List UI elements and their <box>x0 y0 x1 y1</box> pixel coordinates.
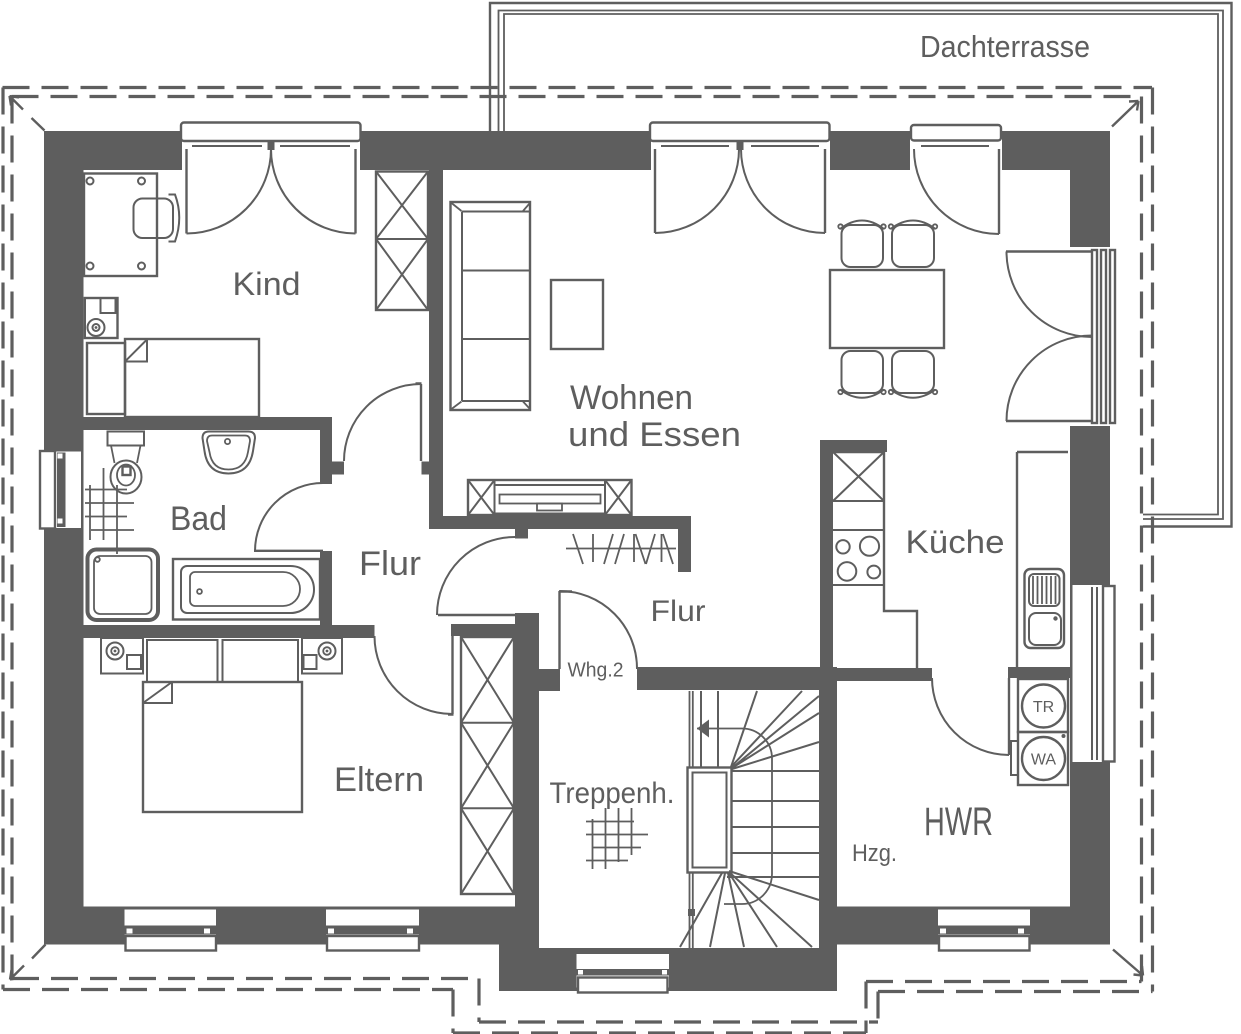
svg-text:Dachterrasse: Dachterrasse <box>920 29 1090 64</box>
svg-text:HWR: HWR <box>924 800 993 844</box>
svg-text:WA: WA <box>1031 752 1057 769</box>
svg-text:Kind: Kind <box>233 266 301 302</box>
svg-text:Whg.2: Whg.2 <box>568 660 624 682</box>
svg-text:TR: TR <box>1033 699 1054 716</box>
svg-text:Treppenh.: Treppenh. <box>550 777 675 810</box>
svg-text:Wohnen: Wohnen <box>570 379 693 417</box>
svg-text:Eltern: Eltern <box>334 761 424 799</box>
svg-text:Bad: Bad <box>170 500 227 538</box>
svg-text:Hzg.: Hzg. <box>852 840 897 867</box>
svg-text:Küche: Küche <box>906 524 1005 560</box>
svg-text:und Essen: und Essen <box>568 416 741 454</box>
svg-text:Flur: Flur <box>359 545 421 583</box>
svg-text:Flur: Flur <box>651 595 706 628</box>
